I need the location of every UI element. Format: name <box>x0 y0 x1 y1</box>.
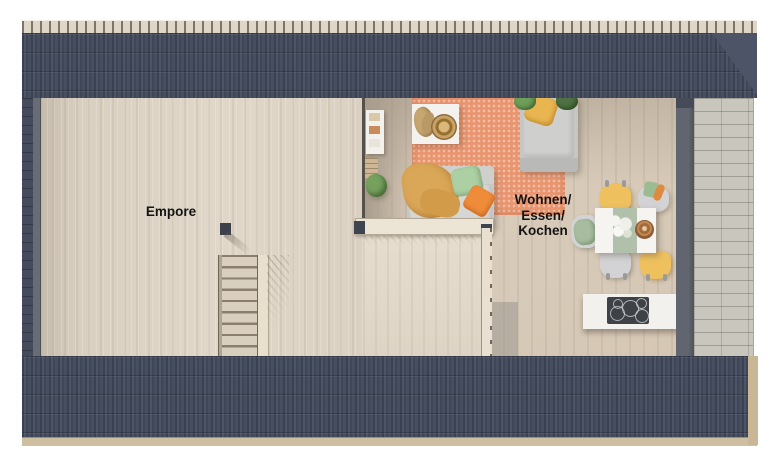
chair-backrest-post <box>623 273 627 280</box>
wall-end-cap <box>354 221 365 234</box>
empore-floor <box>40 98 363 356</box>
potted-plant <box>366 174 387 197</box>
left-gable-roof-edge <box>22 98 33 356</box>
book-spine <box>369 139 380 147</box>
staircase-treads <box>222 255 257 358</box>
stair-shadow-hatch <box>267 255 289 325</box>
half-wall <box>355 218 494 235</box>
room-label-line: Kochen <box>493 223 593 239</box>
partition-wall <box>481 228 492 356</box>
cooktop <box>607 297 649 324</box>
roof-top <box>22 33 757 98</box>
dining-chair-yellow <box>600 184 631 210</box>
chair-backrest-post <box>606 273 610 280</box>
chair-backrest-post <box>663 274 667 281</box>
cooktop-burner <box>635 309 649 323</box>
floor-shadow <box>492 302 518 356</box>
right-wall-cap <box>676 98 694 108</box>
room-label-line: Essen/ <box>493 208 593 224</box>
daybed-armrest <box>520 158 578 172</box>
chair-backrest-post <box>646 274 650 281</box>
decor-bowl <box>635 220 654 239</box>
roof-eave-cap <box>748 356 758 445</box>
woven-basket <box>431 114 457 140</box>
room-label-line: Wohnen/ <box>493 192 593 208</box>
right-wall <box>676 98 694 356</box>
roof-eave-edge <box>22 437 757 446</box>
chair-backrest-post <box>605 180 609 187</box>
empore-gallery-floor <box>363 228 482 356</box>
book-spine <box>369 113 380 121</box>
terrace-tiles <box>694 98 754 356</box>
room-label-wohnen-essen-kochen: Wohnen/ Essen/ Kochen <box>493 192 593 239</box>
roof-bottom <box>22 356 757 437</box>
cooktop-burner <box>636 298 647 309</box>
book-spine <box>369 126 380 134</box>
flower-bouquet <box>607 213 634 239</box>
left-gable-wall <box>33 98 41 356</box>
chair-backrest-post <box>622 180 626 187</box>
floor-plan: Empore Wohnen/ Essen/ Kochen <box>0 0 775 463</box>
room-label-empore: Empore <box>131 204 211 220</box>
